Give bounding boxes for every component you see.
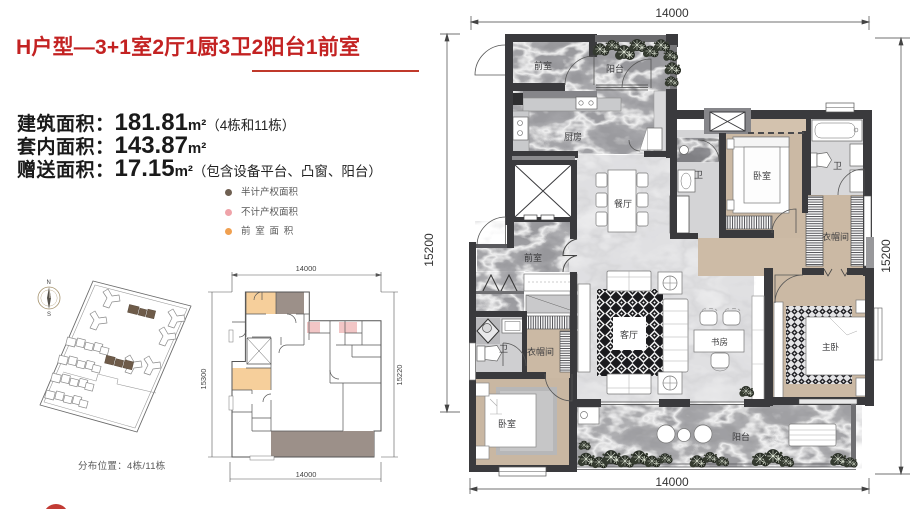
svg-text:15200: 15200 <box>422 233 436 267</box>
svg-text:餐厅: 餐厅 <box>614 198 632 209</box>
svg-text:衣帽间: 衣帽间 <box>822 231 849 242</box>
svg-text:15300: 15300 <box>199 369 208 390</box>
svg-text:S: S <box>47 312 51 318</box>
svg-text:14000: 14000 <box>296 470 317 479</box>
svg-text:客厅: 客厅 <box>620 329 638 340</box>
svg-text:15200: 15200 <box>879 239 893 273</box>
svg-text:衣帽间: 衣帽间 <box>527 346 554 357</box>
svg-text:阳台: 阳台 <box>732 431 750 442</box>
svg-text:前室: 前室 <box>534 60 552 71</box>
svg-text:卧室: 卧室 <box>753 170 771 181</box>
svg-text:14000: 14000 <box>655 6 689 20</box>
svg-text:厨房: 厨房 <box>564 131 582 142</box>
svg-text:主卧: 主卧 <box>822 342 840 352</box>
svg-text:N: N <box>47 280 51 286</box>
svg-text:15220: 15220 <box>395 365 404 386</box>
svg-text:卫: 卫 <box>833 161 842 171</box>
svg-text:阳台: 阳台 <box>606 63 624 74</box>
svg-text:卧室: 卧室 <box>498 418 516 429</box>
svg-text:书房: 书房 <box>711 337 728 347</box>
svg-text:14000: 14000 <box>296 264 317 273</box>
svg-text:卫: 卫 <box>694 170 703 180</box>
svg-text:前室: 前室 <box>524 252 542 263</box>
svg-text:卫: 卫 <box>499 344 508 354</box>
svg-text:14000: 14000 <box>655 475 689 489</box>
